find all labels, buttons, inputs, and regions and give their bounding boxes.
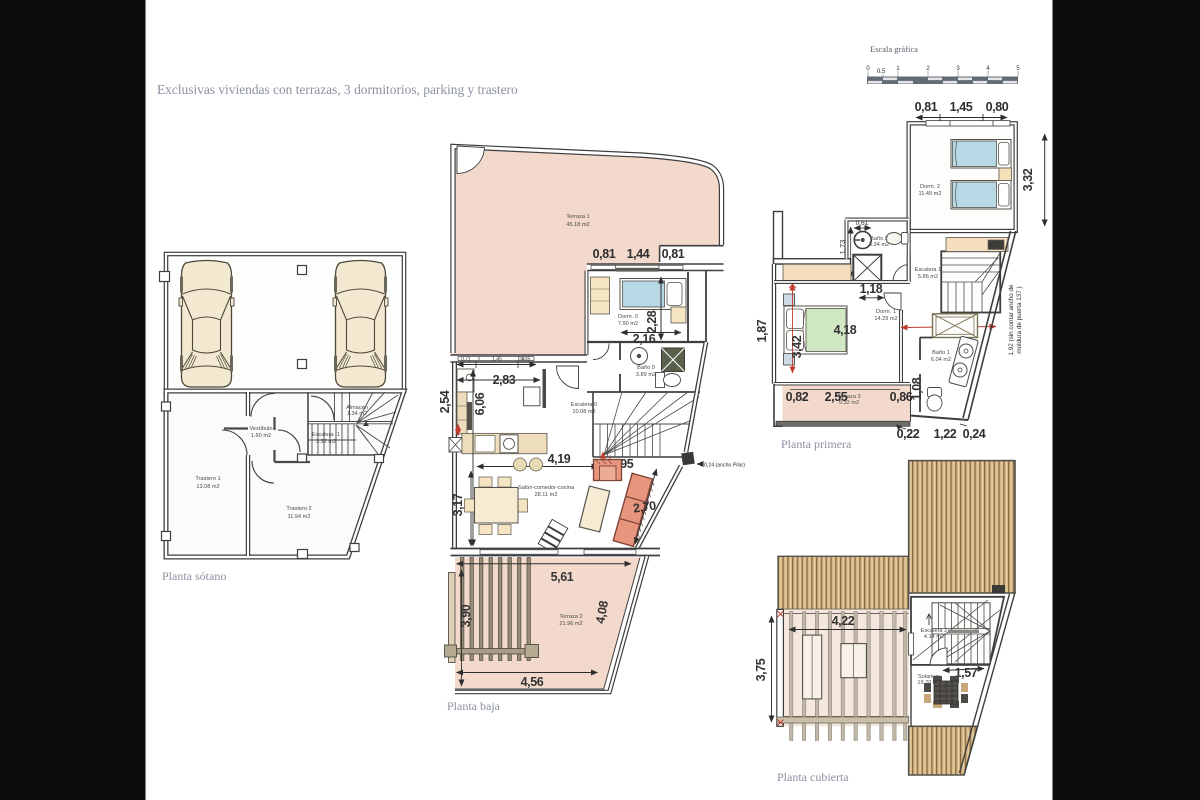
svg-text:5.86 m2: 5.86 m2 [918,274,938,280]
svg-text:4.14 m2: 4.14 m2 [924,634,944,640]
svg-text:Vestíbulo: Vestíbulo [249,426,272,432]
svg-text:Baño 1: Baño 1 [932,350,950,356]
svg-text:Planta baja: Planta baja [447,699,501,713]
svg-text:0,24: 0,24 [963,427,986,441]
svg-text:Escalera 1: Escalera 1 [915,267,941,273]
svg-text:Planta cubierta: Planta cubierta [777,770,849,784]
svg-text:10.08 m2: 10.08 m2 [572,409,595,415]
svg-text:3.32 m2: 3.32 m2 [316,439,336,445]
svg-text:Planta primera: Planta primera [781,437,852,451]
svg-text:Trastero 1: Trastero 1 [195,476,220,482]
svg-text:0,81: 0,81 [915,100,938,114]
svg-text:3.34 m2: 3.34 m2 [869,242,889,248]
svg-text:0,435: 0,435 [518,357,531,363]
svg-text:Terraza 2: Terraza 2 [559,614,582,620]
svg-text:1,45: 1,45 [950,100,973,114]
svg-text:0,81: 0,81 [593,247,616,261]
svg-text:28.11 m2: 28.11 m2 [535,492,558,498]
svg-text:Terraza 1: Terraza 1 [566,214,589,220]
svg-text:0,82: 0,82 [786,390,809,404]
svg-text:1,87: 1,87 [755,319,769,342]
svg-text:0,61: 0,61 [856,220,869,227]
svg-text:1.60 m2: 1.60 m2 [251,433,271,439]
svg-text:0,24 (ancho Pilar): 0,24 (ancho Pilar) [704,463,745,469]
svg-text:11.94 m2: 11.94 m2 [288,514,311,520]
svg-text:1,92 (sin contar ancho de: 1,92 (sin contar ancho de [1008,284,1015,356]
svg-text:0,5: 0,5 [877,69,886,75]
svg-text:4,19: 4,19 [548,452,571,466]
svg-text:6,06: 6,06 [473,392,487,415]
svg-text:3,90: 3,90 [459,604,473,627]
svg-text:Planta sótano: Planta sótano [162,569,226,583]
svg-text:Escalera -1: Escalera -1 [312,432,340,438]
svg-text:45.18 m2: 45.18 m2 [566,222,589,228]
svg-text:1.34 m2: 1.34 m2 [347,411,367,417]
svg-text:21.96 m2: 21.96 m2 [559,621,582,627]
svg-text:0,80: 0,80 [986,100,1009,114]
svg-text:0,22: 0,22 [897,427,920,441]
svg-text:5,61: 5,61 [551,570,574,584]
svg-text:Salón-comedor-cocina: Salón-comedor-cocina [518,485,575,491]
svg-text:moldura de puerta 137 ): moldura de puerta 137 ) [1016,286,1023,353]
svg-text:1,45: 1,45 [492,357,502,363]
svg-text:3.89 m2: 3.89 m2 [636,372,656,378]
svg-text:3,17: 3,17 [451,493,465,516]
svg-text:2,54: 2,54 [438,390,452,413]
svg-text:Dorm. 0: Dorm. 0 [618,314,638,320]
svg-text:4,56: 4,56 [521,675,544,689]
svg-text:2,28: 2,28 [645,310,659,333]
svg-text:4,22: 4,22 [832,614,855,628]
svg-text:2,83: 2,83 [493,373,516,387]
svg-text:0,81: 0,81 [662,247,685,261]
svg-text:Escala gráfica: Escala gráfica [870,44,918,54]
svg-text:13.08 m2: 13.08 m2 [196,484,219,490]
svg-text:14.29 m2: 14.29 m2 [874,316,897,322]
svg-text:Trastero 2: Trastero 2 [286,506,311,512]
svg-text:Baño 0: Baño 0 [637,365,655,371]
svg-text:1,44: 1,44 [627,247,650,261]
svg-text:5.32 m2: 5.32 m2 [839,400,859,406]
svg-text:3,42: 3,42 [790,335,804,358]
svg-text:3,32: 3,32 [1021,168,1035,191]
svg-text:7.90 m2: 7.90 m2 [618,321,638,327]
svg-text:1,73: 1,73 [838,240,847,255]
svg-text:6.04 m2: 6.04 m2 [931,357,951,363]
svg-text:0,86: 0,86 [890,390,913,404]
svg-text:1,18: 1,18 [860,282,883,296]
svg-text:Escalera 0: Escalera 0 [571,402,597,408]
svg-text:11.49 m2: 11.49 m2 [919,191,942,197]
svg-text:Dorm. 1: Dorm. 1 [876,309,896,315]
svg-text:Dorm. 2: Dorm. 2 [920,184,940,190]
svg-text:3,75: 3,75 [754,658,768,681]
svg-text:1,22: 1,22 [934,427,957,441]
svg-text:Exclusivas viviendas con terra: Exclusivas viviendas con terrazas, 3 dor… [157,82,518,97]
svg-text:4,18: 4,18 [834,323,857,337]
svg-text:0,71: 0,71 [461,357,471,363]
